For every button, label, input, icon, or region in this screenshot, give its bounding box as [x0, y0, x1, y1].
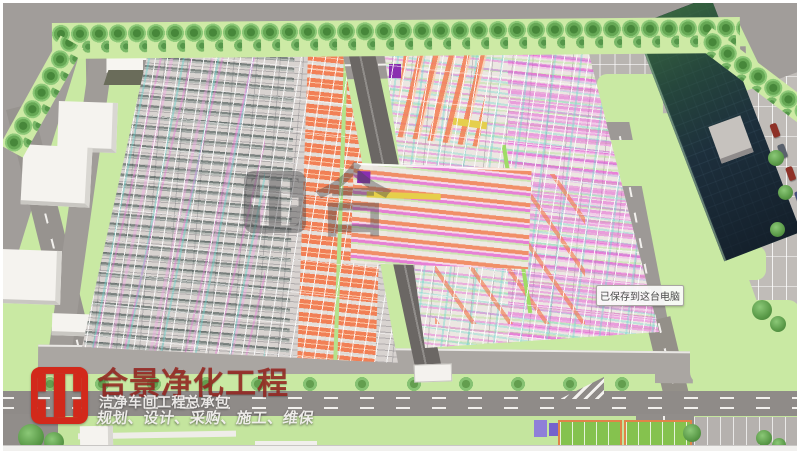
lawn-patch	[690, 300, 800, 384]
white-building	[20, 144, 92, 208]
save-notification[interactable]: 已保存到这台电脑	[596, 285, 684, 306]
save-notification-text: 已保存到这台电脑	[600, 288, 680, 303]
tree	[770, 222, 785, 237]
white-building	[0, 249, 62, 305]
tree	[770, 316, 786, 332]
tree	[752, 300, 772, 320]
tree	[683, 424, 701, 442]
car	[785, 166, 796, 182]
watermark: 合	[240, 160, 410, 250]
brand-tagline: 规划、设计、采购、施工、维保	[96, 407, 316, 428]
watermark-logo-icon	[244, 170, 306, 234]
car	[794, 190, 800, 206]
white-building	[80, 426, 113, 451]
lawn-patch	[597, 74, 663, 122]
tree	[772, 438, 786, 452]
tree	[778, 185, 793, 200]
utility-pad	[549, 423, 558, 436]
sidewalk	[255, 441, 317, 450]
sports-court	[558, 420, 622, 449]
car	[769, 123, 780, 139]
utility-pad	[534, 420, 547, 437]
brand-logo-icon	[31, 367, 88, 424]
tree	[756, 430, 772, 446]
tree	[44, 432, 64, 452]
gate-booth	[414, 363, 453, 382]
white-building	[57, 101, 118, 153]
tree-row-north	[52, 17, 740, 59]
sports-court	[624, 420, 692, 449]
tree	[768, 150, 784, 166]
bim-campus-render: 合 已保存到这台电脑 合景净化工程 洁净车间工程总承包 规划、设计、采购、施工、…	[0, 0, 800, 454]
tree	[18, 424, 44, 450]
watermark-glyph: 合	[314, 160, 392, 244]
